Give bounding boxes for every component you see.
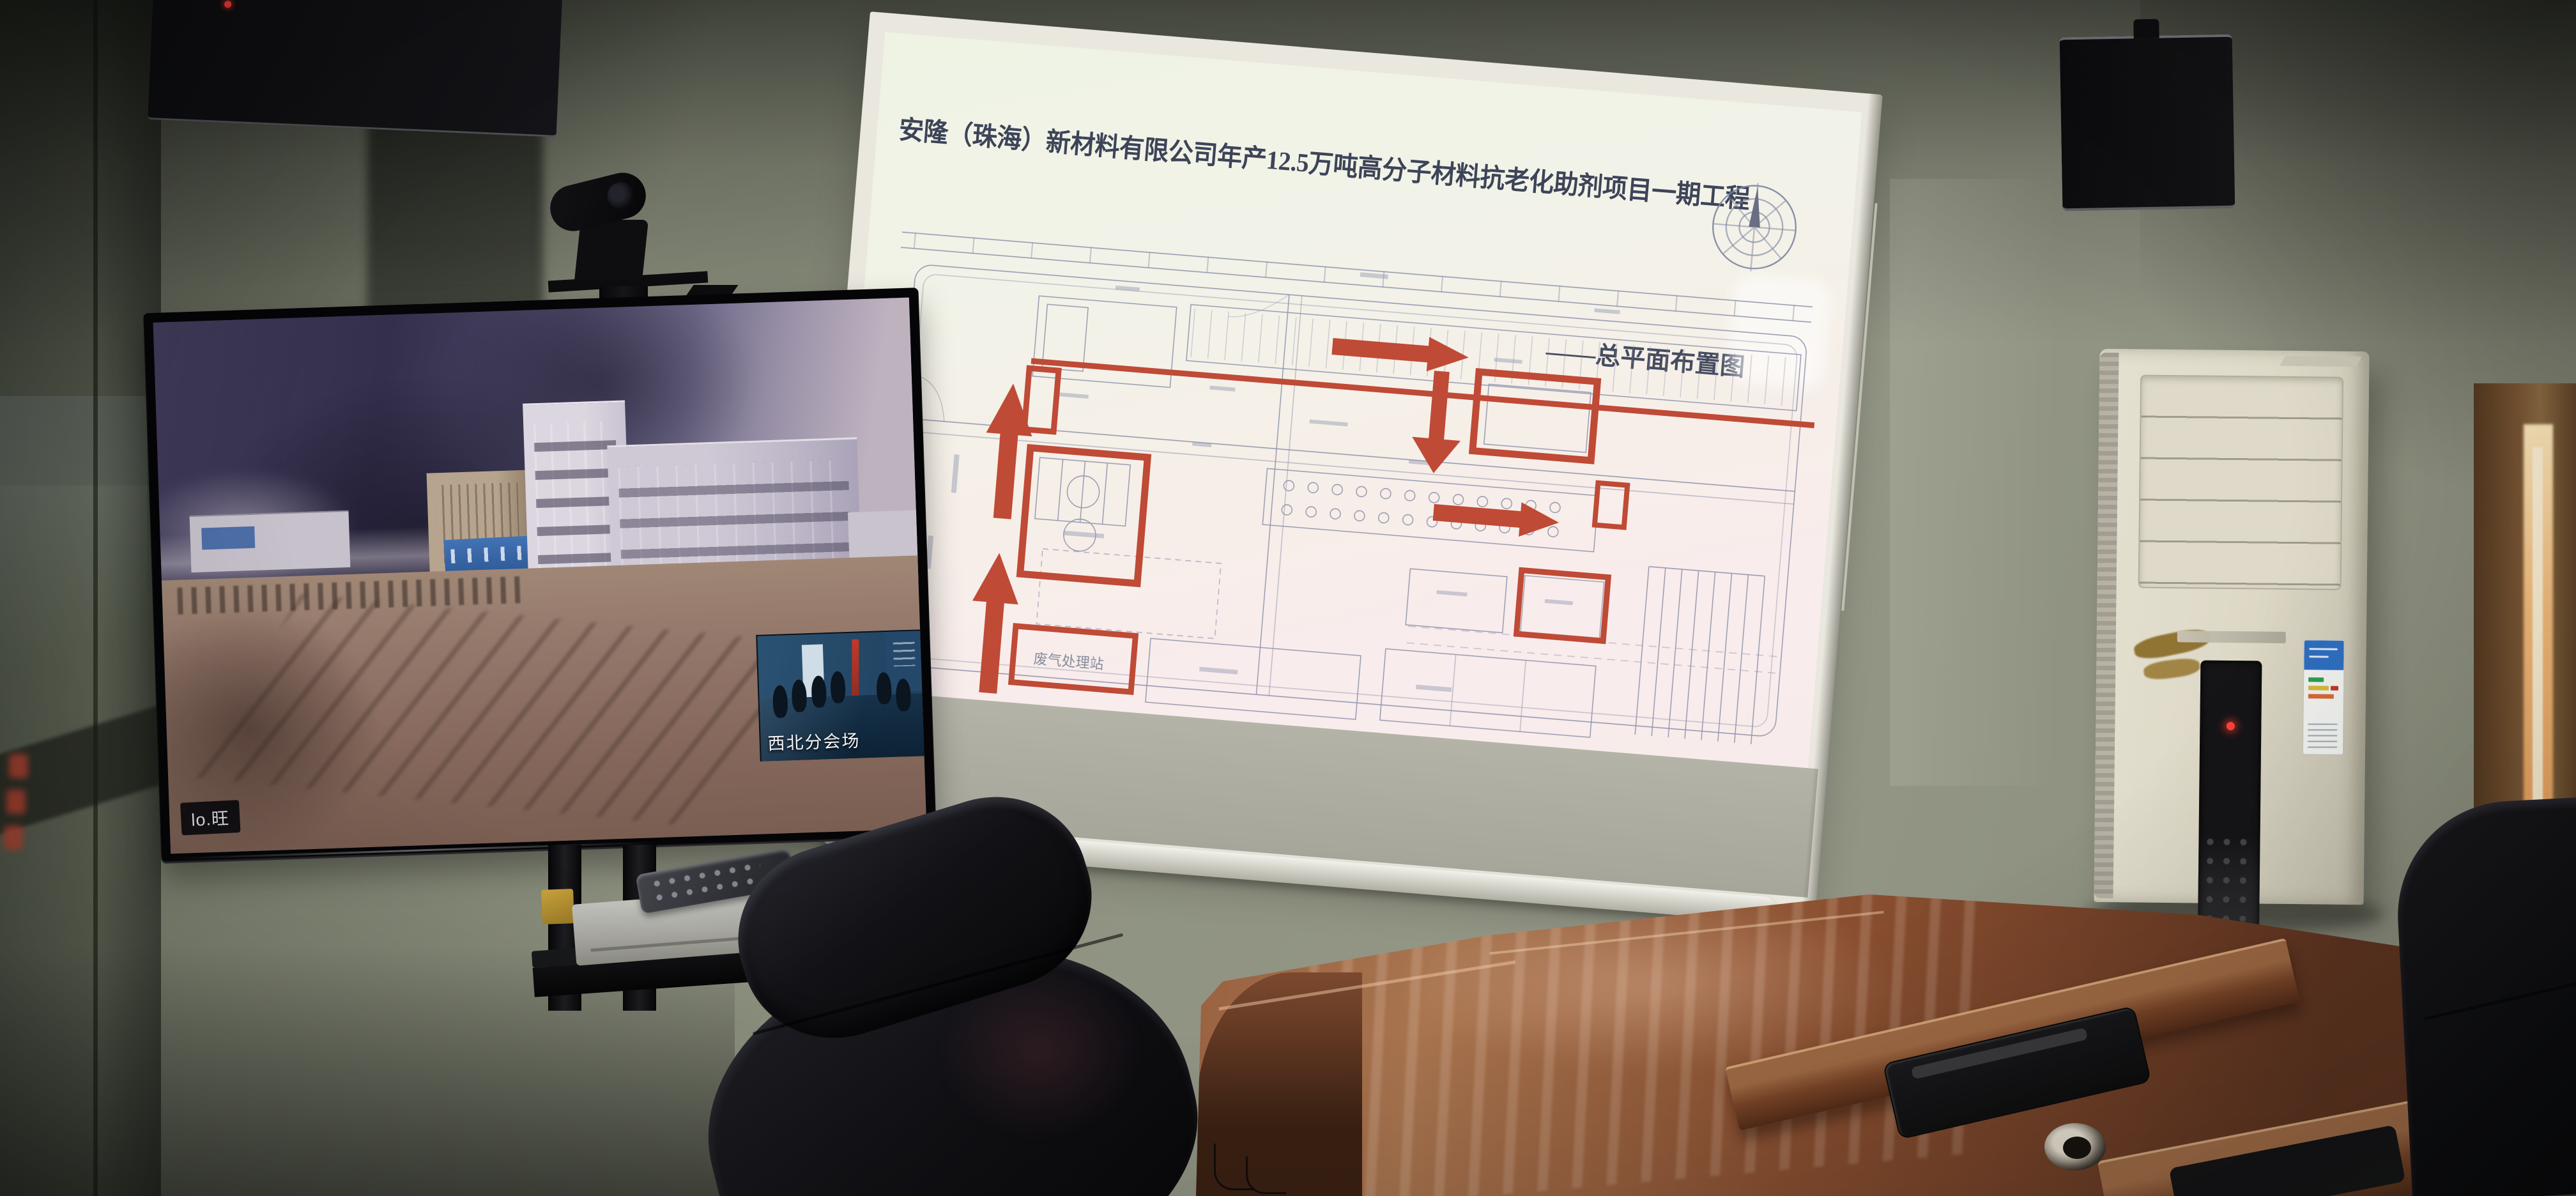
site-plan-drawing: 废气处理站 <box>839 224 1825 759</box>
air-conditioner <box>2094 349 2369 905</box>
stand-sticker <box>541 889 574 924</box>
annotation-arrow-up-2 <box>972 551 1022 604</box>
door-light-core <box>2533 447 2543 805</box>
annotation-arrow-right-2 <box>1433 504 1521 528</box>
plan-building-label: 废气处理站 <box>1033 650 1105 672</box>
energy-dash <box>2310 655 2329 657</box>
red-poster-glimpse <box>6 790 26 814</box>
tv-display: 西北分会场 lo.旺 <box>143 287 937 864</box>
office-chair-center <box>708 822 1168 1196</box>
ac-top-logo <box>2280 356 2362 367</box>
tv-screen: 西北分会场 lo.旺 <box>153 298 927 854</box>
compass-rose-icon <box>1703 172 1807 283</box>
energy-dash <box>2310 648 2338 650</box>
ac-gold-logo-2 <box>2143 656 2201 681</box>
cable-grommet <box>2044 1123 2106 1170</box>
annotation-box-e <box>1517 570 1609 641</box>
energy-bar-yellow <box>2308 686 2329 690</box>
wall-speaker-left <box>148 0 563 137</box>
energy-label-text-lines <box>2308 723 2337 749</box>
conference-room-photo: 安隆（珠海）新材料有限公司年产12.5万吨高分子材料抗老化助剂项目一期工程 ——… <box>0 0 2576 1196</box>
energy-bar-orange <box>2308 694 2334 698</box>
energy-efficiency-label <box>2303 640 2345 755</box>
annotation-top-line <box>1031 358 1815 429</box>
speaker-led <box>224 1 231 8</box>
table-cable <box>1246 1156 1286 1194</box>
energy-arrow <box>2331 686 2338 691</box>
pip-site-label: 西北分会场 <box>767 726 861 755</box>
office-chair-right <box>2392 793 2576 1196</box>
ac-control-panel <box>2198 660 2262 942</box>
ac-power-led <box>2227 722 2235 730</box>
wall-speaker-right <box>2060 34 2235 211</box>
ac-brand-plate <box>2177 631 2286 643</box>
site-banner-small <box>201 526 255 549</box>
slide-title: 安隆（珠海）新材料有限公司年产12.5万吨高分子材料抗老化助剂项目一期工程 <box>898 107 1796 219</box>
pip-red-flag <box>852 639 859 704</box>
energy-label-header <box>2304 640 2343 670</box>
camera-lens-icon <box>604 180 637 212</box>
red-poster-glimpse <box>4 825 23 850</box>
annotation-arrow-right-1 <box>1331 338 1429 362</box>
annotation-box-d <box>1595 483 1627 528</box>
projected-slide: 安隆（珠海）新材料有限公司年产12.5万吨高分子材料抗老化助剂项目一期工程 ——… <box>831 32 1862 768</box>
camera-base <box>574 220 648 281</box>
wall-light-patch <box>1890 179 2101 786</box>
chair-seam <box>2424 966 2576 1021</box>
projector-screen: 安隆（珠海）新材料有限公司年产12.5万吨高分子材料抗老化助剂项目一期工程 ——… <box>802 11 1882 915</box>
energy-bar-green <box>2308 677 2324 682</box>
annotation-box-c <box>1473 372 1598 461</box>
tv-watermark: lo.旺 <box>180 800 240 836</box>
speaker-bracket <box>2133 19 2159 39</box>
red-poster-glimpse <box>9 754 28 778</box>
pip-window: 西北分会场 <box>756 629 924 761</box>
ac-vent-louvers <box>2138 374 2343 590</box>
